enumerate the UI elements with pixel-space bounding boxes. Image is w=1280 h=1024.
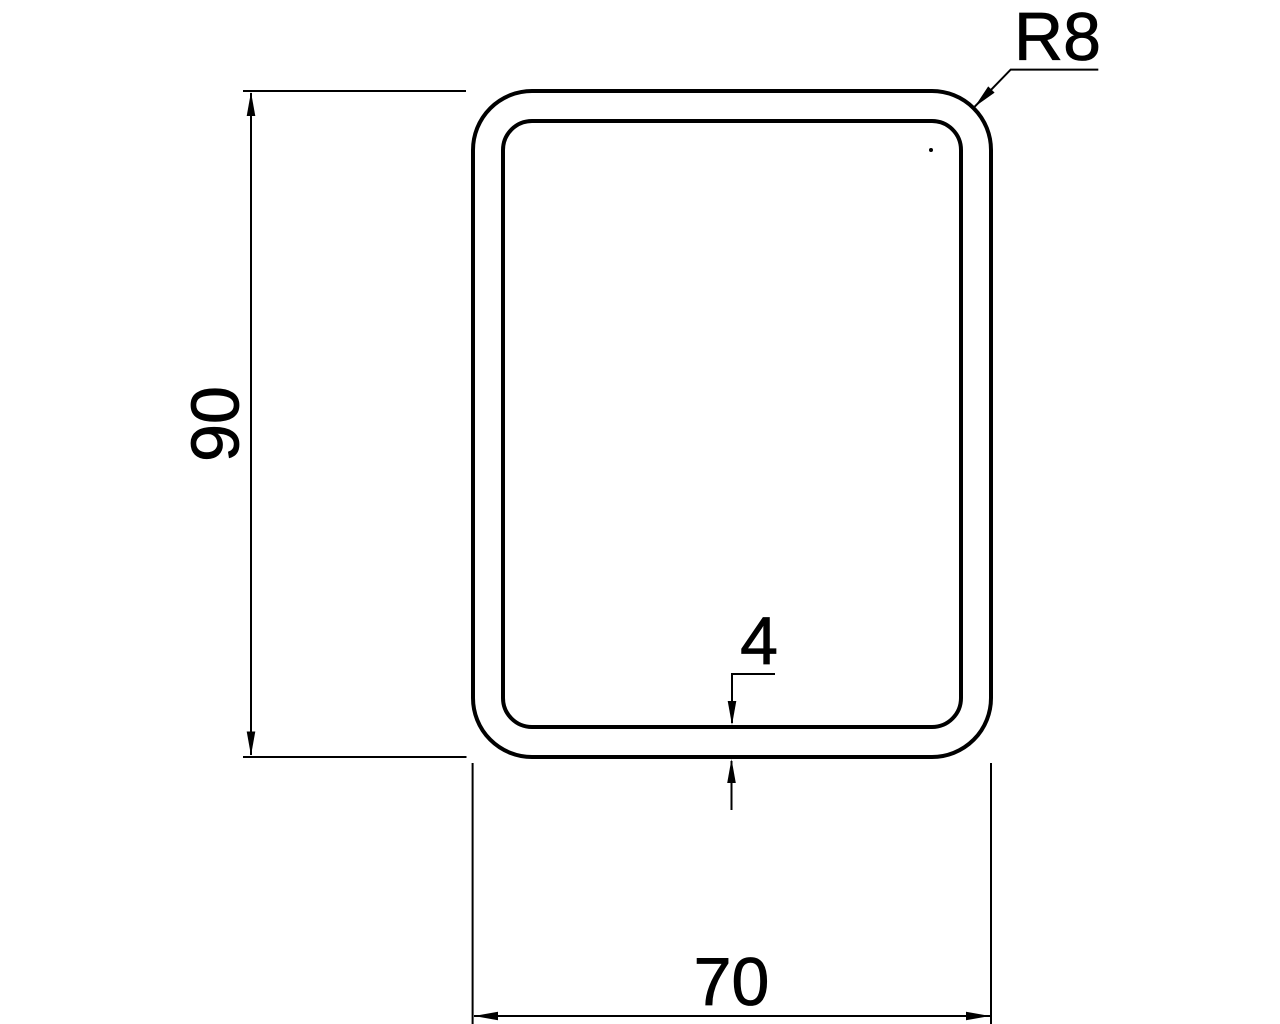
svg-text:4: 4 [740, 603, 778, 679]
svg-text:90: 90 [178, 386, 254, 462]
svg-text:70: 70 [694, 944, 770, 1020]
svg-text:R8: R8 [1014, 0, 1101, 75]
